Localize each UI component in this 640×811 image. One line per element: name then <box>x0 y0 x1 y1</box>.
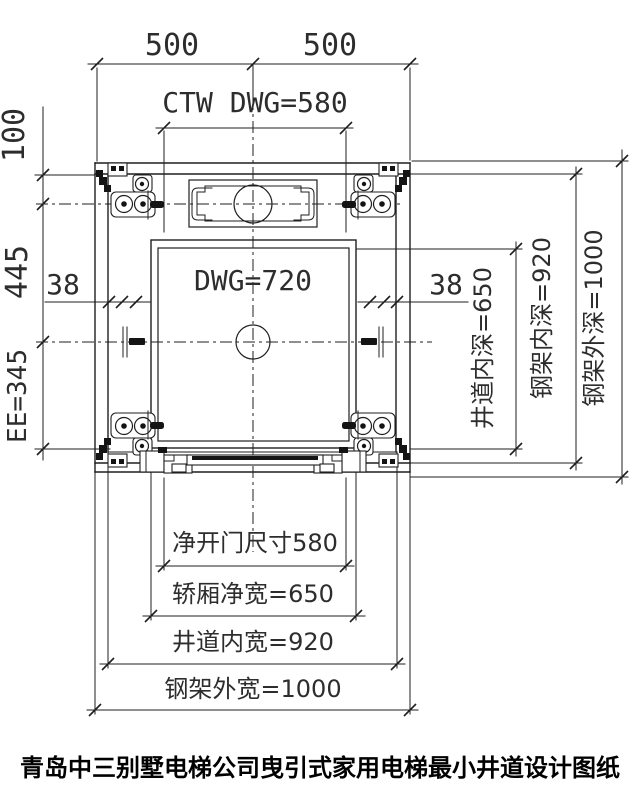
dim-right-rail-gap-38: 38 <box>429 268 463 301</box>
dim-shaft-inner-width: 井道内宽=920 <box>172 628 334 656</box>
dim-left-ee-345: EE=345 <box>3 349 33 443</box>
drawing-title: 青岛中三别墅电梯公司曳引式家用电梯最小井道设计图纸 <box>20 754 620 782</box>
dim-frame-inner-depth: 钢架内深=920 <box>528 237 556 399</box>
dim-left-100: 100 <box>0 108 32 162</box>
dim-top-right-500: 500 <box>303 28 357 63</box>
dim-car-clear-width: 轿厢净宽=650 <box>172 580 334 608</box>
dim-frame-outer-width: 钢架外宽=1000 <box>164 675 341 703</box>
dimension-labels: 500 500 CTW DWG=580 DWG=720 100 445 EE=3… <box>0 28 608 703</box>
dim-frame-outer-depth: 钢架外深=1000 <box>580 229 608 406</box>
dim-left-rail-gap-38: 38 <box>46 268 80 301</box>
dim-car-dwg: DWG=720 <box>194 264 312 297</box>
corner-assembly-top-right <box>342 163 410 219</box>
dim-door-clear-width: 净开门尺寸580 <box>172 529 338 557</box>
elevator-shaft-plan-drawing: 500 500 CTW DWG=580 DWG=720 100 445 EE=3… <box>0 0 640 811</box>
dim-shaft-inner-depth: 井道内深=650 <box>469 267 497 429</box>
drawing-page: 500 500 CTW DWG=580 DWG=720 100 445 EE=3… <box>0 0 640 811</box>
dim-ctw-width: CTW DWG=580 <box>162 86 347 119</box>
dim-left-445: 445 <box>0 245 35 299</box>
dim-top-left-500: 500 <box>145 28 199 63</box>
corner-assembly-top-left <box>96 163 164 219</box>
